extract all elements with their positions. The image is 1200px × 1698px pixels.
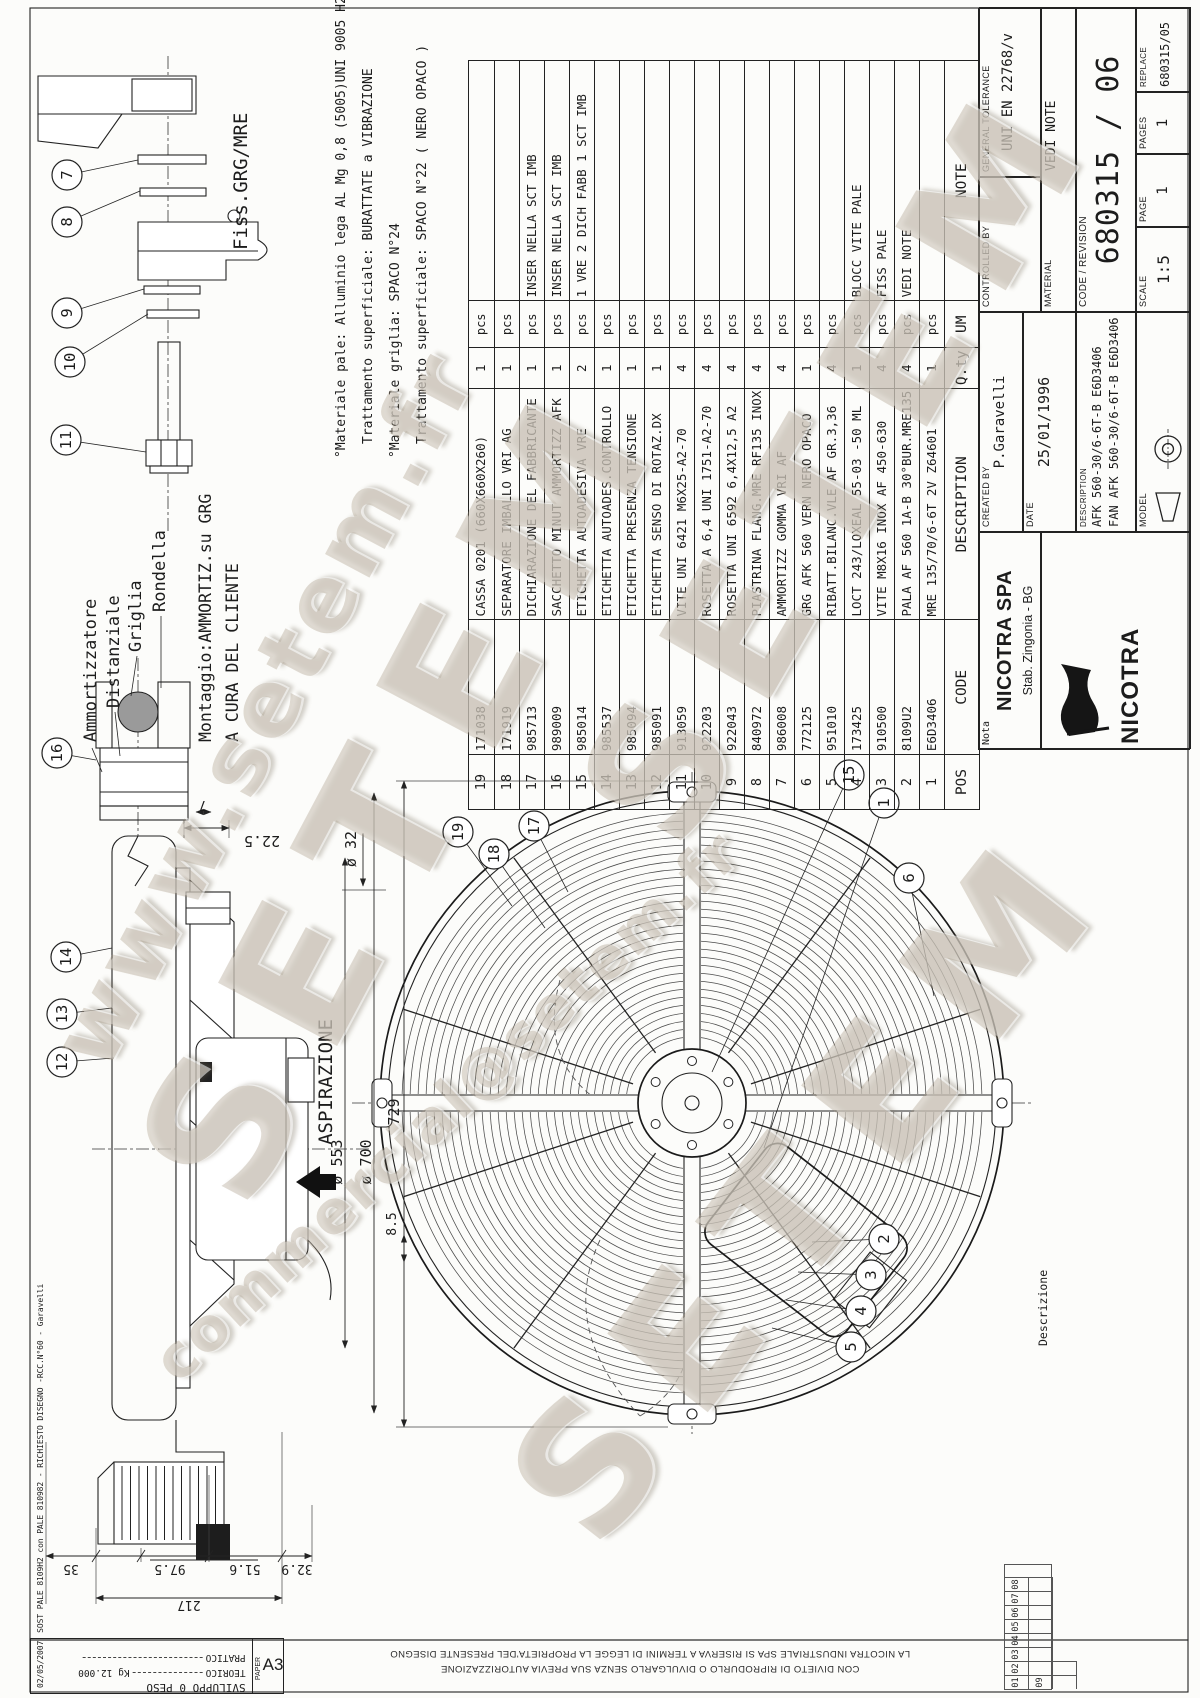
description-line2: FAN AFK 560-30/6-6T-B E6D3406 [1106,317,1123,527]
material-note-line: Trattamento superficiale: BURATTATE a VI… [355,48,382,458]
bom-pos: 10 [694,754,719,809]
revision-index-cell [1029,1577,1053,1591]
weight-corner-block: SVILUPPO 0 PESO TEORICOKg 12.000 PRATICO… [30,1638,284,1694]
bom-qty: 1 [544,347,569,388]
bom-qty: 1 [469,347,494,388]
code-revision-label: CODE / REVISION [1078,12,1089,307]
pages-value: 1 [1155,97,1172,149]
bom-note: VEDI NOTE [894,61,919,300]
page-value: 1 [1155,159,1172,222]
bom-row: 10 922203 ROSETTA A 6,4 UNI 1751-A2-70 4… [694,61,719,809]
bom-header-row: POS CODE DESCRIPTION Q.ty UM NOTE [944,61,979,809]
bom-code: 8109U2 [894,620,919,755]
scale-cell: SCALE 1:5 [1136,227,1191,312]
bom-note [469,61,494,300]
bom-note [919,61,944,300]
bom-row: 8 840972 PIASTRINA FLANG.MRE RF135 INOX … [744,61,769,809]
bom-note: INSER NELLA SCT IMB [544,61,569,300]
bom-qty: 4 [819,347,844,388]
date-value: 25/01/1996 [1036,317,1053,527]
bom-description: ROSETTA UNI 6592 6,4X12,5 A2 [719,388,744,619]
bom-qty: 1 [844,347,869,388]
bom-pos: 18 [494,754,519,809]
bom-um: pcs [894,300,919,347]
bom-description: PIASTRINA FLANG.MRE RF135 INOX [744,388,769,619]
pages-cell: PAGES 1 [1136,92,1191,154]
bom-code: 772125 [794,620,819,755]
bom-qty: 1 [519,347,544,388]
descrizione-label: Descrizione [1036,1270,1050,1346]
scale-label: SCALE [1138,232,1149,307]
bom-description: ETICHETTA SENSO DI ROTAZ.DX [644,388,669,619]
model-cell: MODEL [1136,312,1191,532]
revision-index-cell [1053,1661,1077,1675]
rondella-label: Rondella [150,530,170,612]
bom-um: pcs [494,300,519,347]
bom-header-note: NOTE [944,61,979,300]
pages-label: PAGES [1138,97,1149,149]
bom-header-description: DESCRIPTION [944,388,979,619]
material-notes: °Materiale pale: Alluminio lega AL Mg 0,… [328,48,436,458]
bom-um: pcs [819,300,844,347]
bom-code: 951010 [819,620,844,755]
bom-row: 7 986008 AMMORTIZZ GOMMA VRI AF 4 pcs [769,61,794,809]
pratico-label: PRATICO [206,1652,246,1663]
description-line1: AFK 560-30/6-6T-B E6D3406 [1089,317,1106,527]
revision-index-cell [1029,1591,1053,1605]
bom-pos: 9 [719,754,744,809]
created-by-cell: CREATED BY P.Garavelli [979,312,1023,532]
bom-pos: 7 [769,754,794,809]
bom-pos: 5 [819,754,844,809]
company-name: NICOTRA SPA [994,570,1016,711]
bom-code: 171919 [494,620,519,755]
bom-um: pcs [569,300,594,347]
bom-qty: 4 [694,347,719,388]
bom-description: ETICHETTA AUTOADES.CONTROLLO [594,388,619,619]
material-note-line: °Materiale griglia: SPACO N°24 [382,48,409,458]
teorico-value: Kg 12.000 [78,1667,129,1678]
bom-pos: 14 [594,754,619,809]
tolerance-label: GENERAL TOLERANCE [981,12,992,172]
bom-row: 19 171038 CASSA 0201 (660X660X260) 1 pcs [469,61,494,809]
bom-header-um: UM [944,300,979,347]
bom-note: BLOCC VITE PALE [844,61,869,300]
page-label: PAGE [1138,159,1149,222]
date-cell: DATE 25/01/1996 [1023,312,1076,532]
bom-description: GRG AFK 560 VERN NERO OPACO [794,388,819,619]
weight-lines: SVILUPPO 0 PESO TEORICOKg 12.000 PRATICO [31,1639,252,1697]
bom-note [494,61,519,300]
bom-description: AMMORTIZZ GOMMA VRI AF [769,388,794,619]
bom-note: INSER NELLA SCT IMB [519,61,544,300]
description-cell: DESCRIPTION AFK 560-30/6-6T-B E6D3406 FA… [1076,312,1136,532]
bom-description: LOCT 243/LOXEAL 55-03 -50 ML [844,388,869,619]
bom-code: 913059 [669,620,694,755]
bom-row: 5 951010 RIBATT.BILANC.VLE AF GR.3,36 4 … [819,61,844,809]
tolerance-cell: GENERAL TOLERANCE UNI EN 22768/v [979,7,1041,177]
company-plant: Stab. Zingonia - BG [1021,586,1035,696]
bom-code: 986008 [769,620,794,755]
material-label: MATERIAL [1043,259,1054,307]
bom-qty: 1 [619,347,644,388]
ammortizzatore-label: Ammortizzatore [81,599,101,742]
bom-pos: 17 [519,754,544,809]
bom-um: pcs [619,300,644,347]
bom-description: RIBATT.BILANC.VLE AF GR.3,36 [819,388,844,619]
distanziale-label: Distanziale [104,595,124,708]
scale-value: 1:5 [1155,232,1172,307]
bom-pos: 2 [894,754,919,809]
bom-pos: 12 [644,754,669,809]
rotated-sheet-layer: 02/05/2007SOST PALE 8109H2 con PALE 8109… [0,0,1200,1698]
bom-note [669,61,694,300]
bom-row: 14 985537 ETICHETTA AUTOADES.CONTROLLO 1… [594,61,619,809]
replace-cell: REPLACE 680315/05 [1136,7,1191,92]
bom-qty: 4 [769,347,794,388]
tolerance-value: UNI EN 22768/v [1000,12,1017,172]
nota-label: Nota [981,721,992,745]
logo-cell: NICOTRA [1041,532,1191,749]
bom-code: 985537 [594,620,619,755]
bom-description: SEPARATORE IMBALLO VRI AG [494,388,519,619]
code-revision-value: 680315 / 06 [1089,12,1129,307]
montaggio-note: Montaggio:AMMORTIZ.su GRG A CURA DEL CLI… [192,494,246,742]
bom-row: 6 772125 GRG AFK 560 VERN NERO OPACO 1 p… [794,61,819,809]
fiss-grg-mre-label: Fiss.GRG/MRE [230,113,252,250]
bom-code: 173425 [844,620,869,755]
revision-index-cell [1029,1619,1053,1633]
montaggio-line2: A CURA DEL CLIENTE [219,494,246,742]
paper-label: PAPER [255,1657,262,1680]
bom-code: 840972 [744,620,769,755]
bom-um: pcs [769,300,794,347]
teorico-label: TEORICO [206,1667,246,1678]
bom-row: 4 173425 LOCT 243/LOXEAL 55-03 -50 ML 1 … [844,61,869,809]
bom-qty: 4 [744,347,769,388]
bom-um: pcs [744,300,769,347]
bom-note [619,61,644,300]
bom-row: 9 922043 ROSETTA UNI 6592 6,4X12,5 A2 4 … [719,61,744,809]
bom-description: VITE M8X16 INOX AF 450-630 [869,388,894,619]
revision-index-cell [1053,1675,1077,1689]
controlled-by-cell: CONTROLLED BY [979,177,1041,312]
revision-index-cell: 07 [1005,1591,1029,1605]
company-cell: Nota NICOTRA SPA Stab. Zingonia - BG [979,532,1041,749]
bom-description: VITE UNI 6421 M6X25-A2-70 [669,388,694,619]
bom-pos: 13 [619,754,644,809]
bom-pos: 3 [869,754,894,809]
revision-text: SOST PALE 8109H2 con PALE 810982 - RICHI… [36,1284,45,1633]
bom-um: pcs [669,300,694,347]
bom-note: 1 VRE 2 DICH FABB 1 SCT IMB [569,61,594,300]
revision-index-cell: 08 [1005,1577,1029,1591]
bom-row: 15 985014 ETICHETTA AUTOADESIVA VRE 2 pc… [569,61,594,809]
bom-code: 985094 [619,620,644,755]
bom-table: 19 171038 CASSA 0201 (660X660X260) 1 pcs… [468,60,980,810]
controlled-by-label: CONTROLLED BY [981,182,992,307]
bom-description: ETICHETTA AUTOADESIVA VRE [569,388,594,619]
bom-um: pcs [644,300,669,347]
material-cell: MATERIAL VEDI NOTE [1041,7,1076,312]
bom-code: 910500 [869,620,894,755]
sviluppo-line: SVILUPPO 0 PESO [37,1680,246,1695]
bom-header-code: CODE [944,620,979,755]
bom-code: 985014 [569,620,594,755]
bom-um: pcs [694,300,719,347]
bom-note [644,61,669,300]
bom-row: 13 985094 ETICHETTA PRESENZA TENSIONE 1 … [619,61,644,809]
bom-row: 17 985713 DICHIARAZIONE DEL FABBRICANTE … [519,61,544,809]
revision-index-cell: 09 [1029,1675,1053,1689]
bom-description: SACCHETTO MINUT AMMORTIZZ AFK [544,388,569,619]
bom-note [744,61,769,300]
bom-note [819,61,844,300]
bom-um: pcs [719,300,744,347]
bom-pos: 8 [744,754,769,809]
bom-um: pcs [919,300,944,347]
bom-qty: 1 [644,347,669,388]
bom-code: 985091 [644,620,669,755]
bom-qty: 2 [569,347,594,388]
bom-header-pos: POS [944,754,979,809]
title-block: Nota NICOTRA SPA Stab. Zingonia - BG NIC… [978,8,1190,750]
created-by-value: P.Garavelli [992,317,1009,527]
replace-value: 680315/05 [1157,12,1174,87]
bom-description: MRE 135/70/6-6T 2V Z64601 [919,388,944,619]
legal-line: LA NICOTRA INDUSTRIALE SPA SI RISERVA A … [290,1646,1010,1661]
bom-row: 1 E6D3406 MRE 135/70/6-6T 2V Z64601 1 pc… [919,61,944,809]
bom-um: pcs [519,300,544,347]
bom-um: pcs [844,300,869,347]
nicotra-flag-icon [1043,654,1113,744]
bom-pos: 11 [669,754,694,809]
bom-qty: 1 [494,347,519,388]
bom-um: pcs [594,300,619,347]
model-label: MODEL [1138,317,1149,527]
bom-row: 3 910500 VITE M8X16 INOX AF 450-630 4 pc… [869,61,894,809]
bom-qty: 1 [919,347,944,388]
bom-description: ROSETTA A 6,4 UNI 1751-A2-70 [694,388,719,619]
bom-description: ETICHETTA PRESENZA TENSIONE [619,388,644,619]
bom-description: CASSA 0201 (660X660X260) [469,388,494,619]
drawing-sheet: 22.5 7 ø 32 ø 553 ø 700 729 8.5 [0,0,1200,1698]
bom-code: 985713 [519,620,544,755]
paper-size-value: A3 [263,1655,284,1675]
bom-qty: 4 [669,347,694,388]
bom-header-qty: Q.ty [944,347,979,388]
revision-index-cell [1029,1605,1053,1619]
bom-pos: 1 [919,754,944,809]
revision-index-table: 01 02 03 04 05 06 07 08 09 [1004,1564,1052,1690]
bom-note: FISS PALE [869,61,894,300]
bom-code: 171038 [469,620,494,755]
bom-qty: 1 [594,347,619,388]
bom-qty: 4 [719,347,744,388]
bom-qty: 1 [794,347,819,388]
revision-index-cell [1029,1661,1053,1675]
created-by-label: CREATED BY [981,317,992,527]
bom-note [594,61,619,300]
bom-qty: 4 [894,347,919,388]
nicotra-logo-text: NICOTRA [1117,537,1145,744]
page-cell: PAGE 1 [1136,154,1191,227]
projection-method-icon [1149,407,1187,527]
revision-index-cell: 01 [1005,1675,1029,1689]
replace-label: REPLACE [1138,12,1149,87]
bom-code: E6D3406 [919,620,944,755]
montaggio-line1: Montaggio:AMMORTIZ.su GRG [192,494,219,742]
legal-notice: CON DIVIETO DI RIPRODURLO O DIVULGARLO S… [290,1646,1010,1676]
revision-index-cell [1029,1633,1053,1647]
bom-note [694,61,719,300]
bom-row: 11 913059 VITE UNI 6421 M6X25-A2-70 4 pc… [669,61,694,809]
material-note-line: °Materiale pale: Alluminio lega AL Mg 0,… [328,48,355,458]
bom-note [794,61,819,300]
legal-line: CON DIVIETO DI RIPRODURLO O DIVULGARLO S… [290,1661,1010,1676]
bom-code: 922043 [719,620,744,755]
bom-code: 922203 [694,620,719,755]
paper-size-cell: PAPER A3 [252,1639,283,1693]
bom-row: 16 989009 SACCHETTO MINUT AMMORTIZZ AFK … [544,61,569,809]
bom-pos: 15 [569,754,594,809]
bom-um: pcs [469,300,494,347]
bom-description: PALA AF 560 1A-B 30°BUR.MRE135 [894,388,919,619]
bom-row: 18 171919 SEPARATORE IMBALLO VRI AG 1 pc… [494,61,519,809]
bom-pos: 4 [844,754,869,809]
revision-index-cell: 06 [1005,1605,1029,1619]
revision-index-cell [1029,1647,1053,1661]
description-label: DESCRIPTION [1078,317,1089,527]
material-note-line: Trattamento superficiale: SPACO N°22 ( N… [409,48,436,458]
bom-um: pcs [794,300,819,347]
revision-note: 02/05/2007SOST PALE 8109H2 con PALE 8109… [36,1284,45,1688]
bom-um: pcs [544,300,569,347]
bom-code: 989009 [544,620,569,755]
bom-row: 2 8109U2 PALA AF 560 1A-B 30°BUR.MRE135 … [894,61,919,809]
bom-description: DICHIARAZIONE DEL FABBRICANTE [519,388,544,619]
bom-qty: 4 [869,347,894,388]
code-revision-cell: CODE / REVISION 680315 / 06 [1076,7,1136,312]
bom-note [719,61,744,300]
revision-index-cell: 04 [1005,1633,1029,1647]
bom-pos: 6 [794,754,819,809]
bom-row: 12 985091 ETICHETTA SENSO DI ROTAZ.DX 1 … [644,61,669,809]
revision-index-cell: 05 [1005,1619,1029,1633]
bom-um: pcs [869,300,894,347]
bom-pos: 16 [544,754,569,809]
bom-pos: 19 [469,754,494,809]
griglia-label: Griglia [126,580,146,652]
bom-note [769,61,794,300]
